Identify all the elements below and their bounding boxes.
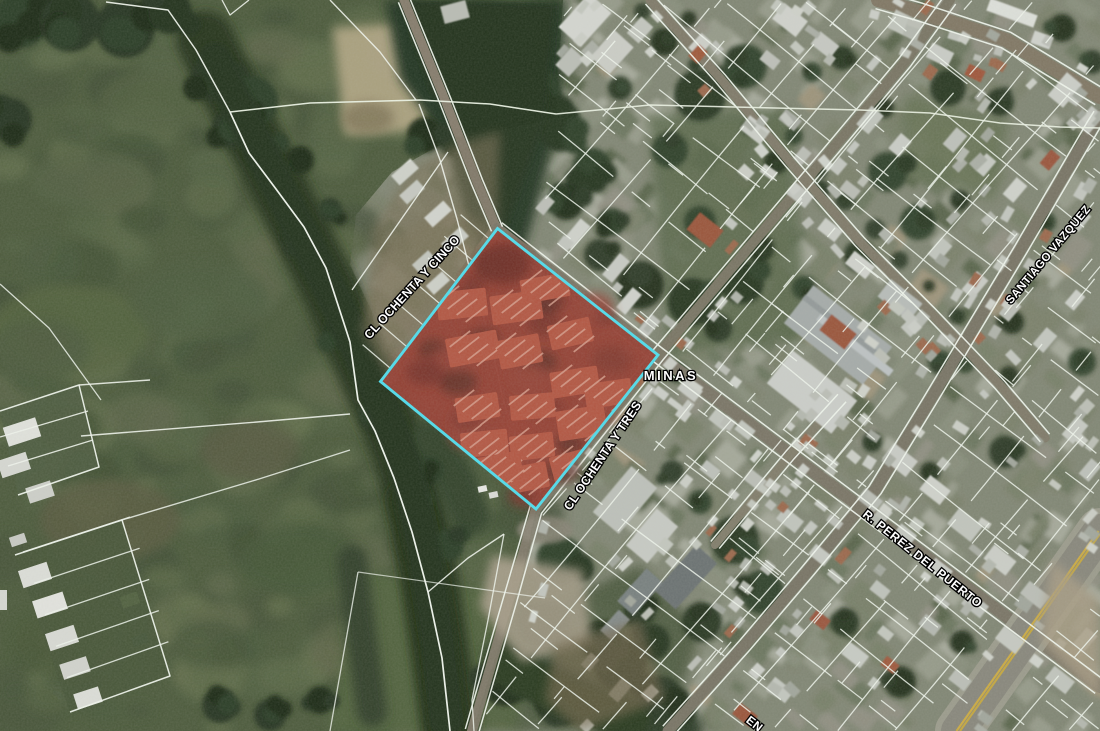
svg-text:MINAS: MINAS	[644, 368, 698, 383]
